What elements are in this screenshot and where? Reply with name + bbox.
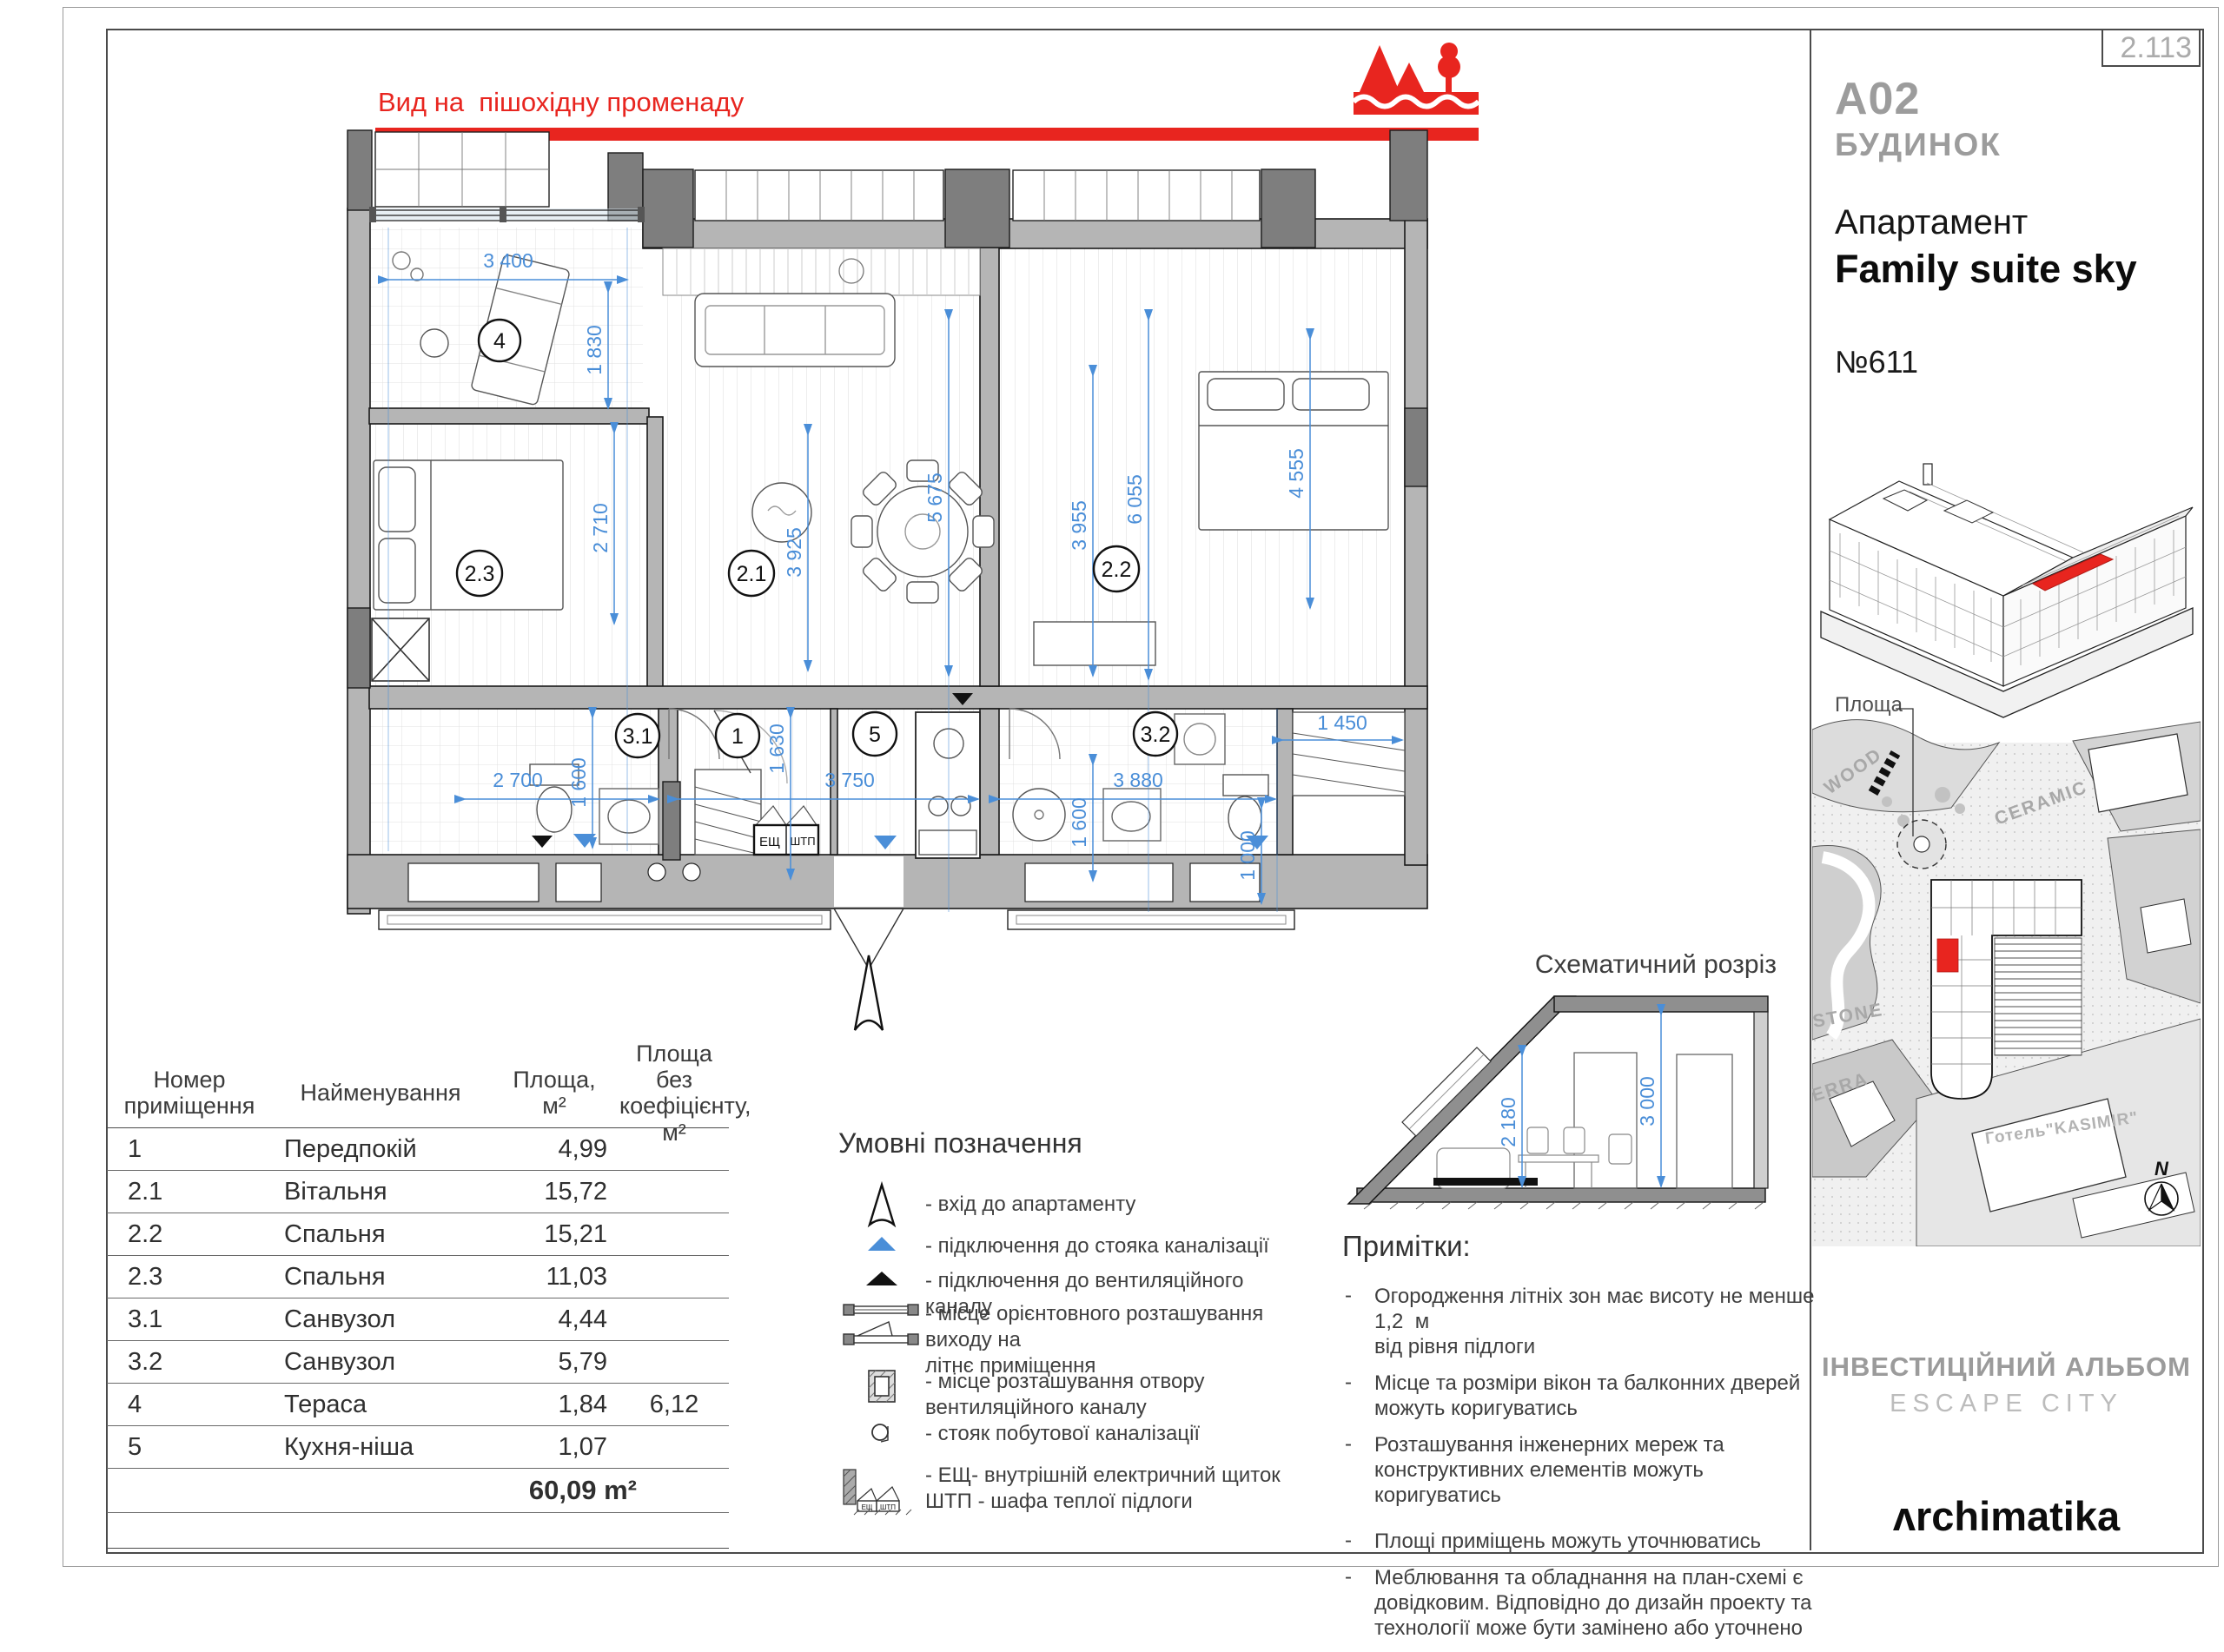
schematic-section: Схематичний розріз 2 180 3 000 [1338,942,1790,1229]
dim-hall-w: 3 750 [824,769,875,791]
table-row: 3.1 Санвузол 4,44 [107,1298,729,1340]
album-title: ІНВЕСТИЦІЙНИЙ АЛЬБОМ [1812,1351,2201,1383]
note-item: - Меблювання та обладнання на план-схемі… [1345,1565,1818,1641]
legend-item-summer-exit: - місце орієнтовного розташування виходу… [838,1301,1325,1379]
page-ref-badge: 2.113 [2102,29,2201,67]
col-header-area: Площа, м² [489,1067,619,1119]
cell-num: 3.2 [107,1348,272,1377]
dim-bed22-h3: 4 555 [1285,448,1307,499]
table-empty-row [107,1512,729,1549]
cell-num: 5 [107,1433,272,1462]
building-axonometric [1814,415,2200,728]
dim-bed23-h: 2 710 [589,503,612,553]
apartment-number: №611 [1835,344,1918,380]
archimatika-logo: ʌrchimatika [1812,1492,2201,1540]
compass-n-label: N [2154,1158,2169,1180]
note-item: - Огородження літніх зон має висоту не м… [1345,1284,1818,1359]
apartment-name: Family suite sky [1835,247,2137,292]
cell-num: 3.1 [107,1305,272,1334]
table-row: 3.2 Санвузол 5,79 [107,1340,729,1383]
kitchen-niche-unit [916,712,980,858]
cell-area: 1,07 [489,1433,619,1462]
cell-area: 4,99 [489,1135,619,1164]
cell-num: 2.3 [107,1263,272,1292]
col-header-name: Найменування [272,1080,489,1106]
entry-arrow-icon [838,1180,925,1228]
vent-marker-icon [838,1268,925,1289]
dim-closet-w: 1 450 [1317,711,1367,734]
summer-exit-icon [838,1301,925,1351]
dim-terrace-w: 3 400 [483,249,533,272]
cell-num: 2.2 [107,1220,272,1249]
table-row: 2.2 Спальня 15,21 [107,1213,729,1255]
section-title: Схематичний розріз [1535,950,1777,979]
esh-label: ЕЩ [759,835,780,849]
room-31-label: 3.1 [623,724,653,749]
site-map: WOOD CERAMIC STONE TERRA Готель"KASIMIR"… [1812,691,2201,1246]
dim-terrace-d: 1 830 [583,325,606,375]
esh-label: ЕЩ [862,1503,873,1511]
dining-set [851,460,994,603]
shtp-label: ШТП [790,835,815,848]
table-row: 2.1 Вітальня 15,72 [107,1170,729,1213]
room-32-label: 3.2 [1141,723,1171,747]
note-item: - Місце та розміри вікон та балконних дв… [1345,1371,1818,1421]
promenade-icon [1354,40,1484,132]
cell-name: Спальня [272,1220,489,1249]
building-code: A02 [1835,73,1920,125]
cell-name: Санвузол [272,1305,489,1334]
legend-item-panels: ЕЩ ШТП - ЕЩ- внутрішній електричний щито… [838,1463,1325,1517]
dim-living-h2: 5 675 [923,472,946,523]
cell-name: Спальня [272,1263,489,1292]
col-header-number: Номер приміщення [107,1067,272,1119]
cell-num: 1 [107,1135,272,1164]
table-row: 2.3 Спальня 11,03 [107,1255,729,1298]
terrace-table [420,329,448,357]
cell-num: 2.1 [107,1178,272,1206]
cell-name: Вітальня [272,1178,489,1206]
room-4-label: 4 [493,329,506,354]
cell-area-nocoef: 6,12 [619,1391,729,1419]
windows [375,132,1260,221]
room-1-label: 1 [731,724,744,749]
cell-area: 11,03 [489,1263,619,1292]
dim-bed22-h2: 6 055 [1123,474,1146,525]
sofa [695,294,895,367]
sewer-marker-icon [838,1233,925,1254]
electric-panel-icon: ЕЩ ШТП [838,1463,925,1517]
dim-bed22-h1: 3 955 [1068,500,1090,551]
dim-bath31-h: 1 600 [567,757,590,808]
cell-area: 15,72 [489,1178,619,1206]
room-23-label: 2.3 [465,562,495,586]
dim-hall-h: 1 630 [765,724,788,774]
terrace-glazing [369,207,645,222]
legend-item-sewer: - підключення до стояка каналізації [838,1233,1312,1259]
facade-openings [379,856,1294,966]
cell-area: 1,84 [489,1391,619,1419]
note-item: - Розташування інженерних мереж та конст… [1345,1432,1818,1508]
total-area: 60,09 m² [107,1468,729,1512]
map-plaza [1897,820,1946,869]
floor-plan: ЕЩ ШТП [330,122,1564,1051]
cell-name: Кухня-ніша [272,1433,489,1462]
section-drawing: 2 180 3 000 [1348,996,1768,1209]
promenade-view-label: Вид на пішохідну променаду [378,87,744,118]
section-dim-inner: 2 180 [1497,1097,1519,1147]
entry-arrow-icon [855,955,883,1030]
cell-name: Передпокій [272,1135,489,1164]
cell-name: Санвузол [272,1348,489,1377]
shtp-label: ШТП [880,1503,896,1511]
vent-hole-icon [838,1369,925,1404]
notes-title: Примітки: [1342,1230,1471,1263]
dresser [1034,622,1155,665]
album-subtitle: ESCAPE CITY [1812,1390,2201,1418]
dim-bath32-w: 3 880 [1113,769,1163,791]
kitchen-counter [663,248,980,295]
room-21-label: 2.1 [737,562,767,586]
area-table: Номер приміщення Найменування Площа, м² … [107,1041,729,1549]
cell-name: Тераса [272,1391,489,1419]
dim-bath32-h: 1 600 [1068,797,1090,848]
sewer-riser-icon [838,1421,925,1447]
legend-item-sewer-riser: - стояк побутової каналізації [838,1421,1312,1447]
cell-num: 4 [107,1391,272,1419]
room-22-label: 2.2 [1102,558,1132,582]
shaft-box [372,618,429,681]
table-row: 5 Кухня-ніша 1,07 [107,1425,729,1468]
area-table-header: Номер приміщення Найменування Площа, м² … [107,1041,729,1127]
legend-title: Умовні позначення [838,1127,1082,1160]
building-label: БУДИНОК [1835,127,2002,163]
hall-closet [695,770,761,855]
legend-item-vent-hole: - місце розташування отвору вентиляційно… [838,1369,1312,1421]
cell-area: 15,21 [489,1220,619,1249]
cell-area: 4,44 [489,1305,619,1334]
notes-list: - Огородження літніх зон має висоту не м… [1345,1284,1818,1652]
note-item: - Площі приміщень можуть уточнюватись [1345,1529,1818,1554]
table-row: 4 Тераса 1,84 6,12 [107,1383,729,1425]
cell-area: 5,79 [489,1348,619,1377]
apartment-map-highlight [1937,939,1958,972]
dim-living-h1: 3 925 [783,527,805,578]
legend-item-entry: - вхід до апартаменту [838,1180,1312,1228]
section-dim-outer: 3 000 [1636,1076,1658,1127]
apartment-label: Апартамент [1835,203,2028,242]
dim-bath31-w: 2 700 [493,769,543,791]
room-5-label: 5 [869,723,881,747]
col-header-area-nocoef: Площа без коефіцієнту, м² [619,1041,729,1146]
